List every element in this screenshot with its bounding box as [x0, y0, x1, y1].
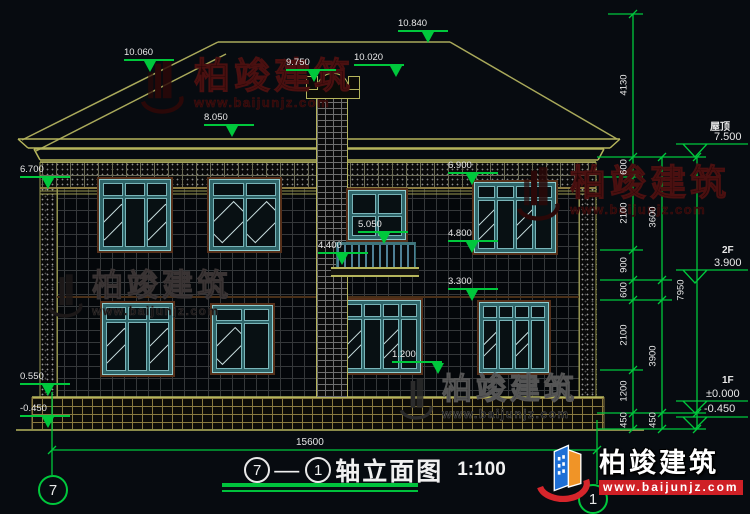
cad-elevation-drawing: 10.840 10.060 10.020 9.750 8.050 6.700 6… — [0, 0, 750, 514]
window-1f-4 — [477, 300, 551, 375]
elev-marker-chimney-cap: 9.750 — [286, 58, 336, 82]
elev-arrow-icon — [42, 385, 54, 396]
vdim-900: 900 — [619, 257, 630, 273]
title-underline-thick — [222, 483, 418, 487]
elev-arrow-icon — [336, 254, 348, 265]
vdim-2100a: 2100 — [619, 202, 630, 223]
window-1f-2 — [210, 303, 275, 375]
elev-arrow-icon — [466, 290, 478, 301]
elev-marker-eave: 8.050 — [204, 113, 254, 137]
title-scale: 1:100 — [457, 459, 506, 481]
vdim-1200: 1200 — [619, 380, 630, 401]
level-1f-label: 1F — [722, 375, 734, 386]
elev-marker-chimney-top: 10.020 — [354, 53, 404, 77]
vdim-600b: 600 — [619, 282, 630, 298]
level-2f-label: 2F — [722, 245, 734, 256]
elev-marker-plinth: 0.550 — [20, 372, 70, 396]
elev-marker-ground-left: -0.450 — [20, 404, 70, 428]
vdim-4130: 4130 — [619, 74, 630, 95]
elev-marker-frieze-left: 6.700 — [20, 165, 70, 189]
elev-marker-roof-left: 10.060 — [124, 48, 174, 72]
title-axis-start: 7 — [244, 457, 270, 483]
title-underline-thin — [222, 490, 418, 492]
elev-arrow-icon — [466, 242, 478, 253]
chimney-cap-post-right — [348, 76, 360, 90]
vdim-450b: 450 — [648, 412, 659, 428]
vdim-450a: 450 — [619, 412, 630, 428]
level-1f-zero: ±0.000 — [706, 388, 740, 400]
elev-arrow-icon — [226, 126, 238, 137]
elev-marker-lintel-1f: 3.300 — [448, 277, 498, 301]
vdim-3600: 3600 — [648, 206, 659, 227]
elev-arrow-icon — [466, 174, 478, 185]
vdim-7950: 7950 — [676, 279, 687, 300]
title-dash: — — [274, 456, 301, 485]
balcony-slab — [331, 267, 419, 277]
elev-arrow-icon — [432, 363, 444, 374]
elev-arrow-icon — [42, 417, 54, 428]
brand-logo: 柏竣建筑 www.baijunjz.com — [533, 438, 749, 506]
logo-building-icon — [533, 442, 595, 502]
window-2f-2 — [207, 177, 282, 253]
level-2f-value: 3.900 — [714, 257, 742, 269]
elev-marker-sill-1f: 1.200 — [392, 350, 442, 374]
elev-arrow-icon — [378, 233, 390, 244]
elev-arrow-icon — [308, 71, 320, 82]
elev-marker-frieze-right: 6.900 — [448, 161, 498, 185]
level-roof-value: 7.500 — [714, 131, 742, 143]
elev-arrow-icon — [144, 61, 156, 72]
vdim-3900: 3900 — [648, 345, 659, 366]
hdim-total: 15600 — [296, 437, 324, 448]
elev-arrow-icon — [422, 32, 434, 43]
elev-marker-ridge: 10.840 — [398, 19, 448, 43]
vdim-600a: 600 — [619, 159, 630, 175]
window-2f-1 — [97, 177, 173, 253]
elev-arrow-icon — [42, 178, 54, 189]
elev-marker-sill-2f: 4.800 — [448, 229, 498, 253]
level-1f-neg: -0.450 — [704, 403, 735, 415]
elev-arrow-icon — [390, 66, 402, 77]
window-1f-1 — [100, 301, 175, 377]
title-axis-end: 1 — [305, 457, 331, 483]
elev-marker-balcony-slab: 4.400 — [318, 241, 368, 265]
vdim-2100b: 2100 — [619, 324, 630, 345]
